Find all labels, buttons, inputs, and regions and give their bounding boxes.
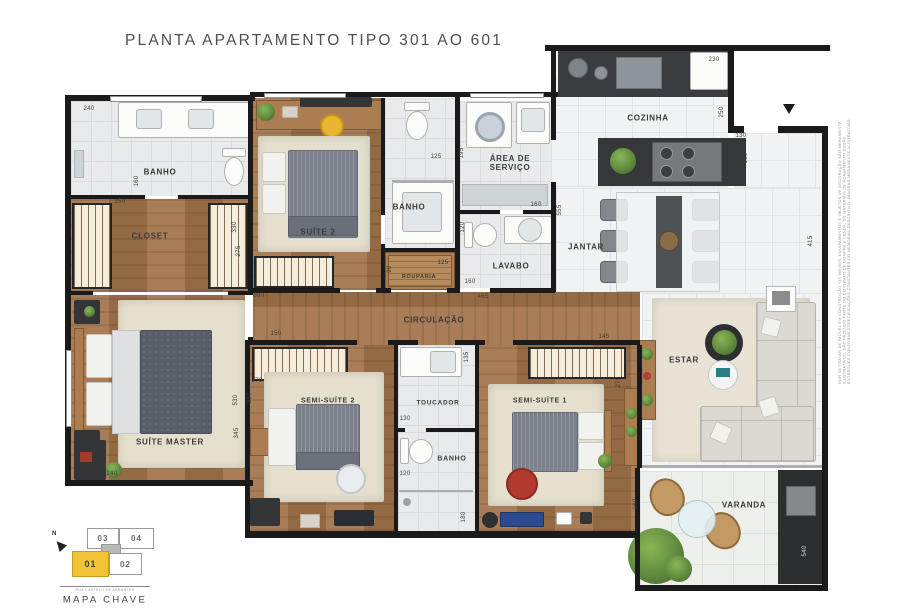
dimension-label: 90 xyxy=(387,265,393,272)
toilet xyxy=(406,111,428,140)
wall-segment xyxy=(635,585,828,591)
room-label-lavabo: LAVABO xyxy=(493,262,530,271)
grill xyxy=(786,486,816,516)
dimension-label: 555 xyxy=(557,205,563,216)
wall-segment xyxy=(248,95,253,295)
towel xyxy=(74,150,84,178)
plant xyxy=(712,330,737,355)
pillow xyxy=(578,412,604,440)
room-label-cozinha: COZINHA xyxy=(627,114,668,123)
room-label-banho-suite-2: BANHO xyxy=(393,203,426,212)
dimension-label: 120 xyxy=(460,222,466,233)
desk-laptop xyxy=(500,512,544,527)
chair-yellow xyxy=(320,114,344,138)
pillow xyxy=(262,184,286,214)
wall-segment xyxy=(455,340,485,345)
burner xyxy=(682,147,695,160)
dome-chair xyxy=(336,464,366,494)
wall-segment xyxy=(455,95,460,293)
wall-segment xyxy=(545,45,830,51)
decor-red xyxy=(643,372,651,380)
desk-chair-red xyxy=(506,468,538,500)
plant xyxy=(626,408,637,419)
wall-segment xyxy=(245,531,640,538)
wardrobe xyxy=(72,203,112,289)
room-label-jantar: JANTAR xyxy=(568,243,604,252)
wall-segment xyxy=(635,468,640,587)
plant xyxy=(666,556,692,582)
room-label-varanda: VARANDA xyxy=(722,501,766,510)
cooking-pot xyxy=(568,58,588,78)
room-label-rouparia: ROUPARIA xyxy=(402,274,437,280)
wardrobe xyxy=(208,203,248,289)
sink xyxy=(136,109,162,129)
tray-items xyxy=(772,291,790,305)
wall-segment xyxy=(394,345,398,535)
wall-segment xyxy=(426,428,478,432)
washer-door xyxy=(475,112,505,142)
room-label-circulacao: CIRCULAÇÃO xyxy=(404,316,465,325)
dimension-label: 380 xyxy=(254,293,265,299)
wall-segment xyxy=(490,288,555,293)
plant xyxy=(84,306,95,317)
keymap-street-label: RUA CASTELO DE ABRANTES xyxy=(75,588,134,592)
sink xyxy=(430,351,456,373)
toilet xyxy=(409,439,433,464)
cooking-pot xyxy=(594,66,608,80)
north-arrow-icon: N xyxy=(52,534,70,552)
dimension-label: 540 xyxy=(802,546,808,557)
page-title: PLANTA APARTAMENTO TIPO 301 AO 601 xyxy=(125,32,503,50)
dimension-label: 415 xyxy=(808,236,814,247)
room-label-toucador: TOUCADOR xyxy=(416,400,459,407)
burner xyxy=(660,165,673,178)
speaker xyxy=(482,512,498,528)
plant xyxy=(641,348,653,360)
centerpiece xyxy=(659,231,679,251)
wall-segment xyxy=(778,126,828,133)
dimension-label: 345 xyxy=(234,428,240,439)
desk-items xyxy=(300,514,320,528)
wall-segment xyxy=(822,126,828,471)
keymap-unit-02[interactable]: 02 xyxy=(109,553,142,575)
dimension-label: 350 xyxy=(115,199,126,205)
keymap-unit-01[interactable]: 01 xyxy=(72,551,109,577)
desk-items xyxy=(556,512,572,525)
room-label-semi-suite-1: SEMI-SUÍTE 1 xyxy=(513,398,567,405)
dimension-label: 160 xyxy=(134,176,140,187)
room-label-banho-semi-suites: BANHO xyxy=(437,456,466,463)
window xyxy=(66,350,72,427)
room-label-semi-suite-2: SEMI-SUÍTE 2 xyxy=(301,398,355,405)
room-label-suite-2: SUÍTE 2 xyxy=(300,228,335,237)
keymap-unit-04[interactable]: 04 xyxy=(119,528,154,549)
kitchen-sink xyxy=(616,57,662,89)
shower-floor xyxy=(402,192,442,232)
wall-segment xyxy=(513,340,640,345)
dimension-label: 270 xyxy=(616,377,622,388)
pillow xyxy=(86,334,112,378)
wall-segment xyxy=(397,428,405,432)
dimension-label: 230 xyxy=(709,57,720,63)
dimension-label: 130 xyxy=(400,416,411,422)
toilet-tank xyxy=(404,102,430,111)
dimension-label: 130 xyxy=(736,133,747,139)
window xyxy=(470,93,544,98)
pillow xyxy=(86,382,112,426)
dimension-label: 125 xyxy=(438,260,449,266)
wall-segment xyxy=(248,337,253,345)
dimension-label: 530 xyxy=(233,395,239,406)
dimension-label: 150 xyxy=(271,331,282,337)
dimension-label: 125 xyxy=(431,154,442,160)
wall-segment xyxy=(551,45,556,140)
wall-segment xyxy=(65,480,253,486)
bed-headboard xyxy=(74,328,84,436)
dresser xyxy=(250,498,280,526)
floor-plan: PLANTA APARTAMENTO TIPO 301 AO 601 xyxy=(0,0,909,612)
wall-segment xyxy=(388,340,418,345)
dimension-label: 195 xyxy=(459,148,465,159)
plant xyxy=(626,426,637,437)
dimension-label: 240 xyxy=(107,471,118,477)
plant xyxy=(257,103,275,121)
wall-segment xyxy=(178,195,250,199)
burner xyxy=(660,147,673,160)
tv xyxy=(300,97,372,107)
wall-segment xyxy=(475,345,479,535)
toilet xyxy=(473,223,497,247)
room-label-banho-master: BANHO xyxy=(144,168,177,177)
glass-table xyxy=(678,500,716,538)
entrance-arrow-icon xyxy=(783,104,795,114)
tank-basin xyxy=(521,108,545,132)
dimension-label: 160 xyxy=(465,279,476,285)
room-label-closet: CLOSET xyxy=(132,232,169,241)
wall-segment xyxy=(637,345,642,468)
sink xyxy=(188,109,214,129)
desk-laptop xyxy=(334,510,374,526)
dimension-label: 145 xyxy=(599,334,610,340)
toilet-tank xyxy=(222,148,246,157)
dimension-label: 275 xyxy=(236,246,242,257)
disclaimer-text: POR SE TRATAR DE IMÓVEL EM CONSTRUÇÃO, O… xyxy=(838,112,858,384)
toilet xyxy=(224,157,244,186)
shower-glass xyxy=(392,180,454,182)
wardrobe xyxy=(254,256,334,288)
room-label-suite-master: SUÍTE MASTER xyxy=(136,438,204,447)
wall-segment xyxy=(551,182,556,292)
dimension-label: 240 xyxy=(84,106,95,112)
plant xyxy=(598,454,612,468)
dimension-label: 250 xyxy=(719,107,725,118)
dimension-label: 330 xyxy=(247,393,253,404)
dimension-label: 330 xyxy=(232,222,238,233)
dimension-label: 270 xyxy=(252,378,263,384)
wall-segment xyxy=(381,244,385,290)
dimension-label: 160 xyxy=(531,202,542,208)
dimension-label: 160 xyxy=(633,499,639,510)
wall-segment xyxy=(65,95,71,486)
keymap-divider xyxy=(60,586,150,587)
window xyxy=(264,93,346,98)
dimension-label: 180 xyxy=(461,512,467,523)
wardrobe xyxy=(528,347,626,379)
wall-segment xyxy=(245,340,357,345)
plant xyxy=(610,148,636,174)
bed-blanket xyxy=(512,412,578,472)
room-label-area-servico: ÁREA DE SERVIÇO xyxy=(478,154,542,172)
wall-segment xyxy=(381,98,385,215)
round-basin xyxy=(518,218,542,242)
dimension-label: 120 xyxy=(400,471,411,477)
burner xyxy=(682,165,695,178)
bed-sheet xyxy=(112,330,140,434)
dimension-label: 135 xyxy=(464,352,470,363)
wall-segment xyxy=(381,248,457,252)
room-label-estar: ESTAR xyxy=(669,356,699,365)
wall-segment xyxy=(65,195,145,199)
wall-segment xyxy=(822,471,828,591)
plant xyxy=(641,394,653,406)
decor-red xyxy=(80,452,92,462)
dimension-label: 465 xyxy=(478,294,489,300)
wall-segment xyxy=(245,345,250,538)
shower-glass xyxy=(399,490,473,492)
wall-segment xyxy=(728,45,734,133)
shower-head xyxy=(403,498,411,506)
window xyxy=(110,96,202,102)
pillow xyxy=(268,408,296,466)
pillow xyxy=(262,152,286,182)
keymap-title: MAPA CHAVE xyxy=(63,595,147,606)
desk-items xyxy=(282,106,298,118)
bed-blanket xyxy=(140,330,212,434)
desk-items xyxy=(580,512,592,524)
wall-segment xyxy=(458,210,500,214)
books xyxy=(716,368,730,377)
sliding-door-glass xyxy=(642,465,822,468)
toilet-tank xyxy=(400,438,409,464)
dimension-label: 160 xyxy=(743,153,749,164)
